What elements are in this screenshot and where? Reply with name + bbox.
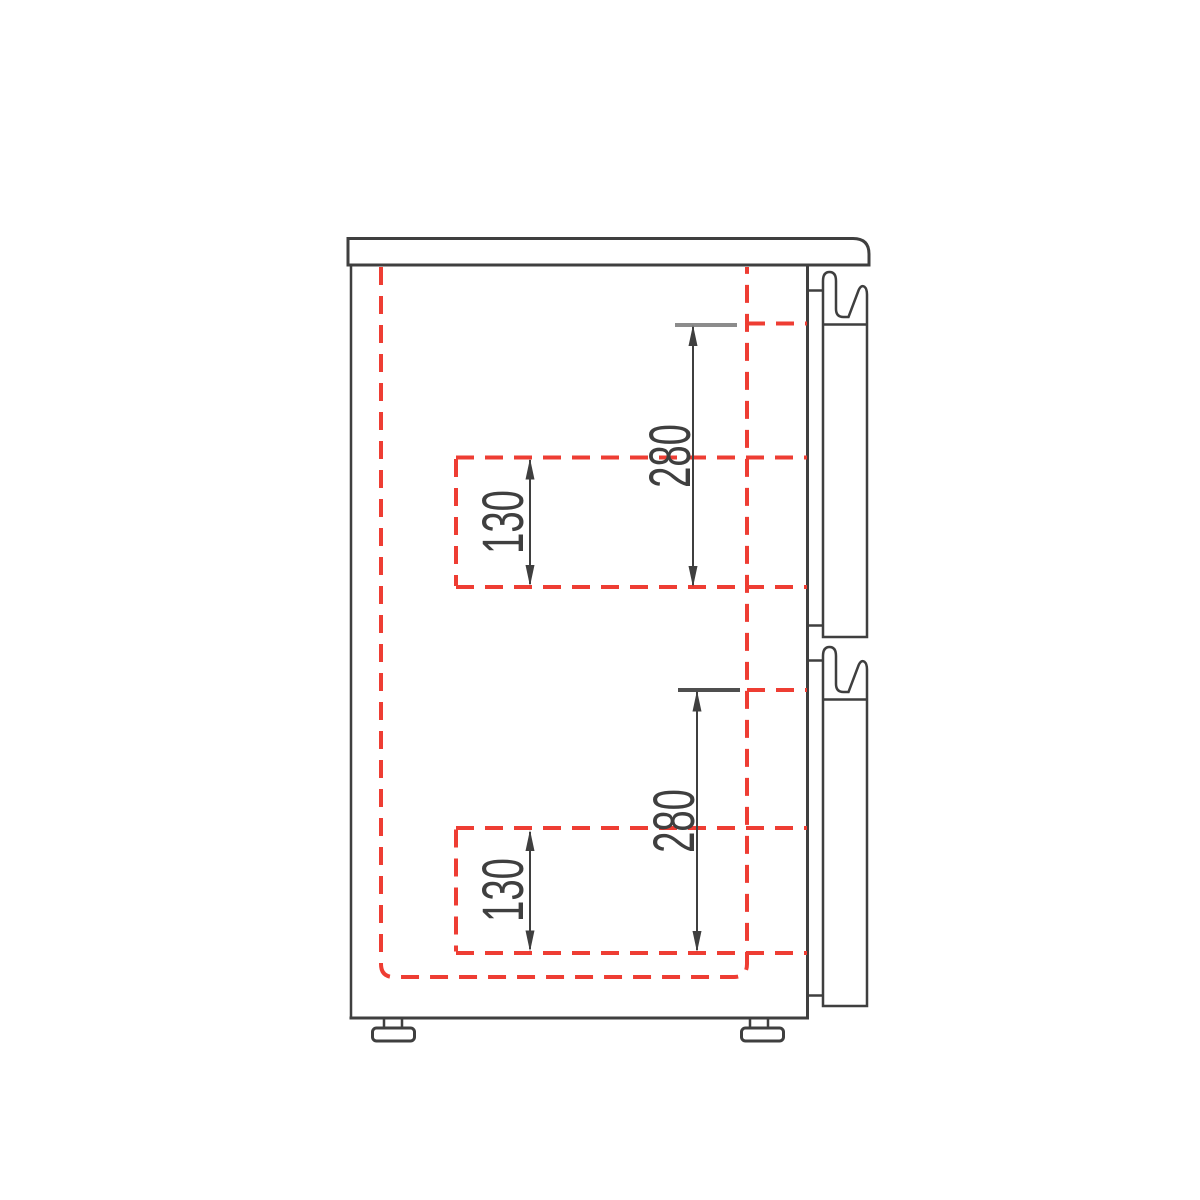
left-foot-base xyxy=(373,1028,415,1041)
right-foot-base xyxy=(742,1028,784,1041)
dimension-label-upper-130: 130 xyxy=(472,490,536,554)
arrowhead-up-icon xyxy=(526,830,535,851)
arrowhead-down-icon xyxy=(693,931,702,952)
dimension-label-lower-280: 280 xyxy=(643,789,707,853)
upper-door-outline xyxy=(823,272,867,637)
arrowhead-up-icon xyxy=(526,459,535,480)
arrowhead-down-icon xyxy=(526,565,535,586)
interior-dashed-guides xyxy=(381,267,807,977)
dimension-lower-280: 280 xyxy=(643,690,740,952)
lower-door-outline xyxy=(823,647,867,1006)
upper-door xyxy=(823,272,867,637)
arrowhead-down-icon xyxy=(526,931,535,952)
lower-door xyxy=(823,647,867,1006)
countertop xyxy=(348,239,869,266)
dimension-upper-130: 130 xyxy=(472,459,536,587)
right-foot xyxy=(742,1019,784,1041)
dimension-lower-130: 130 xyxy=(472,830,536,952)
door-mount-ticks xyxy=(807,291,823,996)
drawing-page: 280 130 280 130 xyxy=(0,0,1200,1200)
arrowhead-up-icon xyxy=(689,325,698,346)
left-foot xyxy=(373,1019,415,1041)
dimension-label-upper-280: 280 xyxy=(639,424,703,488)
arrowhead-up-icon xyxy=(693,691,702,712)
technical-drawing-canvas: 280 130 280 130 xyxy=(0,0,1200,1200)
dimension-label-lower-130: 130 xyxy=(472,858,536,922)
cabinet-outline xyxy=(348,239,869,1019)
arrowhead-down-icon xyxy=(689,566,698,587)
